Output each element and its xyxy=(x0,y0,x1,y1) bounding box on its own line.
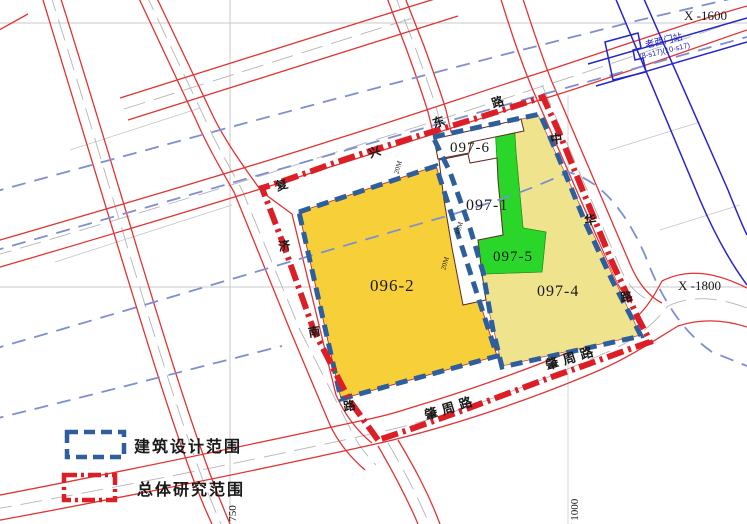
grid-label-y1000: Y 1000 xyxy=(569,498,581,524)
grid-label-x1600: X -1600 xyxy=(684,8,727,23)
legend-research-swatch xyxy=(64,475,115,500)
road-label-zhonghua-char1: 中 xyxy=(549,130,563,147)
road-south-branch-west-edge xyxy=(378,446,418,524)
road-south-branch-east-edge xyxy=(398,440,440,524)
centerline-south-branch xyxy=(388,443,429,524)
site-plan-canvas: 096-2 097-1 097-4 097-5 097-6 复 兴 东 路 济 … xyxy=(0,0,747,524)
road-label-zhonghua-char3: 路 xyxy=(619,288,634,305)
legend-design-label: 建筑设计范围 xyxy=(134,437,242,456)
dim-label-3: 20M xyxy=(392,159,404,175)
grid-label-y750: Y 750 xyxy=(227,505,239,524)
parcel-label-097-4: 097-4 xyxy=(537,283,579,300)
legend-research-label: 总体研究范围 xyxy=(137,480,245,499)
parcel-label-097-1: 097-1 xyxy=(466,197,508,214)
grid-label-x1800: X -1800 xyxy=(678,278,721,293)
parcel-label-097-5: 097-5 xyxy=(493,249,533,265)
parcel-label-097-6: 097-6 xyxy=(450,140,490,156)
metro-line-lower-left xyxy=(0,346,282,420)
site-plan-svg: 096-2 097-1 097-4 097-5 097-6 复 兴 东 路 济 … xyxy=(0,0,747,524)
road-upper-north-edge xyxy=(120,0,438,98)
legend-design-swatch xyxy=(67,432,124,457)
centerline-upper xyxy=(124,17,416,109)
station-labels: 老西门站 (8-s17)(10-s17) xyxy=(638,31,691,61)
legend: 建筑设计范围 总体研究范围 xyxy=(64,432,245,500)
road-label-fuxing-char3: 东 xyxy=(431,113,447,131)
road-label-zhonghua-char2: 华 xyxy=(583,211,597,228)
road-label-jinan-char1: 济 xyxy=(277,237,292,254)
parcel-label-096-2: 096-2 xyxy=(370,276,415,295)
road-label-jinan-char2: 南 xyxy=(307,323,321,340)
road-label-jinan-char3: 路 xyxy=(342,397,357,414)
road-corner-topleft xyxy=(0,14,28,34)
road-zhonghua-north-stub-w xyxy=(498,0,532,88)
road-upper-south-edge xyxy=(128,16,458,120)
